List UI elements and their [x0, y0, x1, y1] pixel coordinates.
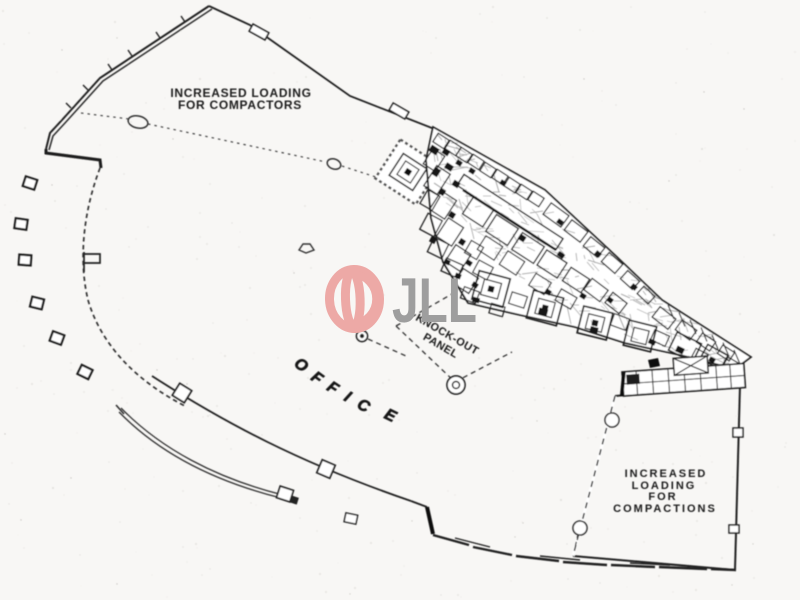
svg-text:FOR COMPACTORS: FOR COMPACTORS — [178, 98, 302, 112]
svg-text:FOR: FOR — [648, 491, 677, 503]
svg-text:INCREASED: INCREASED — [625, 468, 708, 480]
svg-text:I: I — [341, 389, 354, 406]
svg-text:JLL: JLL — [392, 266, 477, 336]
svg-text:O: O — [291, 355, 312, 376]
svg-text:F: F — [324, 378, 342, 398]
svg-text:COMPACTIONS: COMPACTIONS — [613, 503, 717, 515]
svg-text:E: E — [381, 406, 399, 427]
svg-text:F: F — [308, 369, 327, 389]
svg-text:C: C — [354, 396, 373, 417]
